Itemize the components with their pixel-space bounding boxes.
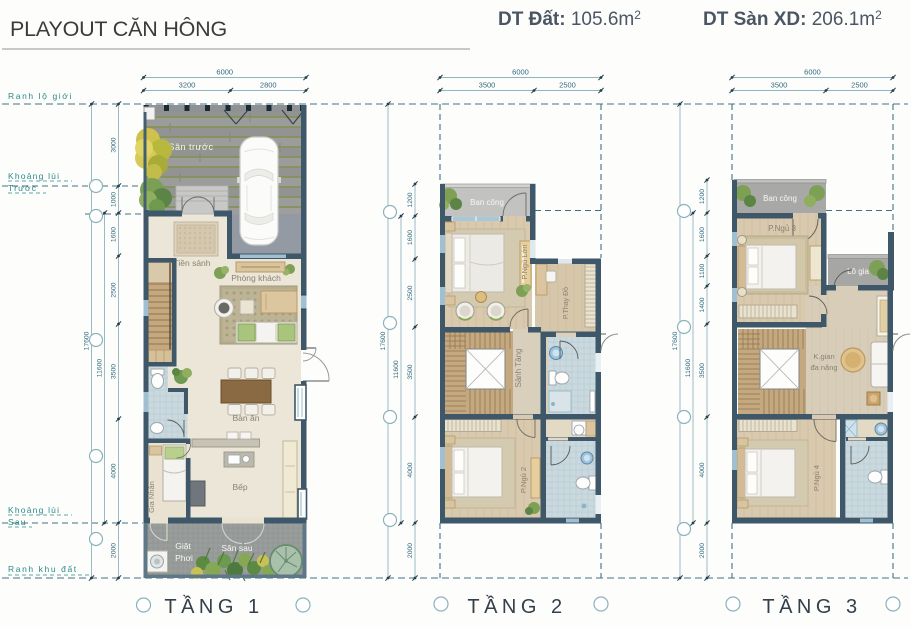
svg-text:6000: 6000: [512, 68, 529, 77]
svg-text:Bếp: Bếp: [232, 482, 247, 492]
svg-text:P.Thay Đồ: P.Thay Đồ: [561, 287, 570, 319]
svg-text:3500: 3500: [771, 81, 788, 90]
svg-text:4000: 4000: [407, 462, 414, 477]
svg-text:11600: 11600: [393, 360, 400, 379]
svg-text:3500: 3500: [111, 364, 118, 379]
svg-text:Khoảng lùi: Khoảng lùi: [8, 171, 60, 181]
svg-text:2000: 2000: [699, 543, 706, 558]
svg-text:Giặt: Giặt: [175, 541, 191, 551]
svg-text:Ban công: Ban công: [470, 198, 504, 207]
svg-text:Phơi: Phơi: [175, 553, 193, 563]
svg-text:P.Ngủ 2: P.Ngủ 2: [519, 467, 528, 493]
svg-text:Sảnh Tầng: Sảnh Tầng: [514, 349, 523, 388]
svg-text:Sân trước: Sân trước: [169, 142, 214, 152]
svg-text:17600: 17600: [380, 331, 387, 350]
svg-text:Phòng khách: Phòng khách: [231, 273, 281, 283]
svg-text:P.Ngủ Lớn: P.Ngủ Lớn: [520, 244, 529, 279]
svg-text:2500: 2500: [407, 285, 414, 300]
svg-text:2500: 2500: [111, 282, 118, 297]
svg-text:3500: 3500: [699, 363, 706, 378]
svg-text:P.Ngủ 3: P.Ngủ 3: [768, 224, 796, 233]
svg-text:Khoảng lùi: Khoảng lùi: [8, 505, 60, 515]
svg-text:1600: 1600: [407, 230, 414, 245]
svg-text:6000: 6000: [216, 68, 233, 77]
svg-text:11600: 11600: [685, 359, 692, 378]
svg-text:1100: 1100: [699, 263, 706, 278]
svg-text:1600: 1600: [699, 227, 706, 242]
svg-text:17600: 17600: [672, 331, 679, 350]
svg-text:1400: 1400: [699, 297, 706, 312]
svg-text:Tiền sảnh: Tiền sảnh: [173, 258, 210, 268]
svg-text:TẦNG 2: TẦNG 2: [467, 595, 566, 618]
svg-text:1000: 1000: [111, 192, 118, 207]
svg-text:Bàn ăn: Bàn ăn: [233, 413, 260, 423]
svg-text:K.gian: K.gian: [813, 352, 834, 361]
svg-text:2000: 2000: [407, 543, 414, 558]
svg-text:3500: 3500: [407, 364, 414, 379]
svg-text:Sau: Sau: [8, 517, 27, 527]
svg-text:2500: 2500: [851, 81, 868, 90]
svg-text:1600: 1600: [111, 227, 118, 242]
svg-text:3000: 3000: [111, 137, 118, 152]
svg-text:Trước: Trước: [8, 183, 37, 193]
svg-text:1200: 1200: [699, 189, 706, 204]
svg-text:11600: 11600: [97, 359, 104, 378]
svg-text:PLAYOUT CĂN HÔNG: PLAYOUT CĂN HÔNG: [10, 16, 227, 41]
svg-text:2500: 2500: [559, 81, 576, 90]
svg-text:Ranh lộ giới: Ranh lộ giới: [8, 91, 73, 101]
svg-text:6000: 6000: [804, 68, 821, 77]
svg-text:đa năng: đa năng: [810, 363, 837, 372]
svg-text:2800: 2800: [260, 81, 277, 90]
svg-text:DT Đất: 105.6m2: DT Đất: 105.6m2: [498, 8, 641, 30]
svg-text:Ban công: Ban công: [763, 194, 797, 203]
svg-text:P.Ngủ 4: P.Ngủ 4: [812, 465, 821, 491]
svg-text:Ranh khu đất: Ranh khu đất: [8, 564, 78, 574]
svg-text:1200: 1200: [407, 192, 414, 207]
svg-text:Lô gia: Lô gia: [847, 267, 869, 276]
svg-text:3200: 3200: [179, 81, 196, 90]
svg-text:4000: 4000: [111, 463, 118, 478]
svg-text:2000: 2000: [111, 543, 118, 558]
svg-text:TẦNG 3: TẦNG 3: [762, 595, 861, 618]
svg-text:TẦNG 1: TẦNG 1: [164, 595, 263, 618]
svg-text:3500: 3500: [479, 81, 496, 90]
svg-text:DT Sàn XD: 206.1m2: DT Sàn XD: 206.1m2: [703, 8, 882, 30]
svg-text:4000: 4000: [699, 462, 706, 477]
